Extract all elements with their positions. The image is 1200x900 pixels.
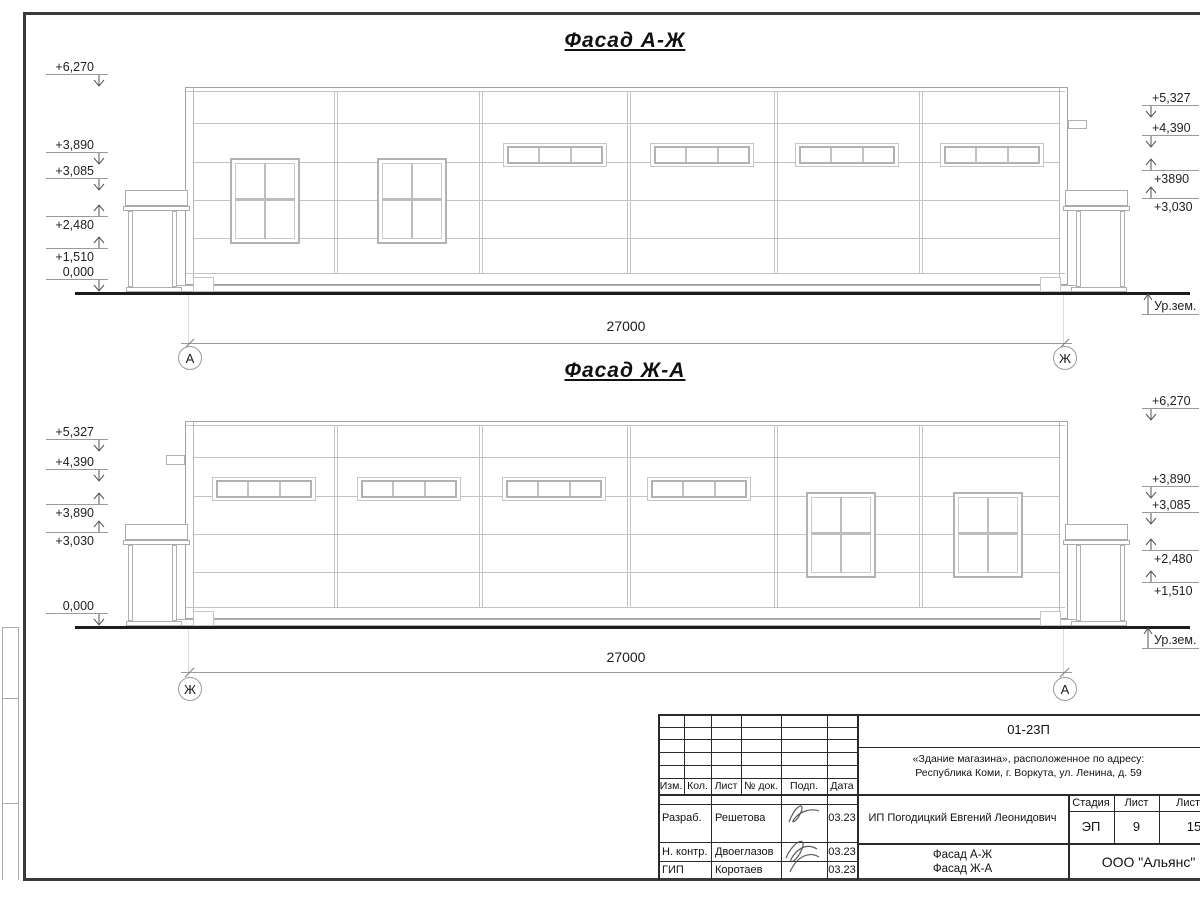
- porch-column: [1076, 545, 1081, 621]
- col-list: Лист: [711, 780, 741, 792]
- window-mullion: [392, 482, 394, 496]
- elevation-value: +3,890: [55, 138, 94, 152]
- elevation-mark: +5,327: [46, 425, 108, 455]
- elevation-leader: [1142, 582, 1199, 583]
- window-transom: [235, 198, 295, 201]
- margin-strip-line: [18, 627, 19, 880]
- titleblock-line: [658, 739, 857, 740]
- porch-canopy: [1065, 524, 1128, 540]
- panel-joint-v: [334, 91, 338, 273]
- margin-strip-divider: [2, 627, 19, 628]
- elevation-mark: 0,000: [46, 265, 108, 295]
- window-mullion: [424, 482, 426, 496]
- stage-value: ЭП: [1068, 819, 1114, 834]
- col-izm: Изм.: [658, 780, 684, 792]
- facade-title: Фасад Ж-А: [480, 359, 770, 383]
- window-ribbon-frame: [799, 146, 895, 164]
- project-line1: «Здание магазина», расположенное по адре…: [857, 753, 1200, 765]
- titleblock-line: [658, 727, 857, 728]
- porch-column: [1120, 211, 1125, 287]
- window-mullion: [570, 148, 572, 162]
- window-mullion: [569, 482, 571, 496]
- window-transom: [811, 532, 871, 535]
- elevation-mark: +3,890: [46, 490, 108, 520]
- frame-left: [23, 12, 26, 881]
- elevation-leader: [1142, 198, 1199, 199]
- role-nkontr: Н. контр.: [662, 846, 707, 858]
- window-mullion: [264, 163, 266, 239]
- sheet-label: Лист: [1114, 797, 1159, 809]
- elevation-mark: +1,510: [46, 234, 108, 264]
- elevation-mark: +4,390: [1142, 121, 1199, 151]
- name-nkontr: Двоеглазов: [715, 846, 773, 858]
- parapet-line: [186, 91, 1065, 92]
- window-ribbon-frame: [944, 146, 1040, 164]
- col-ndok: № док.: [741, 780, 781, 792]
- elevation-mark: 0,000: [46, 599, 108, 629]
- signature-strokes: [781, 794, 827, 880]
- elevation-mark: +6,270: [46, 60, 108, 90]
- panel-joint-v: [334, 425, 338, 607]
- pilaster-line: [193, 87, 194, 285]
- step: [193, 277, 214, 292]
- elevation-arrow-icon: [1145, 513, 1157, 525]
- window-mullion: [247, 482, 249, 496]
- drawing-sheet: Фасад А-Ж Фасад Ж-А 27000 27000 01-23П «…: [0, 0, 1200, 900]
- elevation-value: +3,890: [1152, 472, 1191, 486]
- porch-column: [172, 211, 177, 287]
- elevation-mark: +2,480: [1142, 536, 1199, 566]
- col-kol: Кол.: [684, 780, 711, 792]
- elevation-mark: Ур.зем.: [1142, 293, 1199, 323]
- window-ribbon-frame: [506, 480, 602, 498]
- titleblock-border: [658, 714, 1200, 716]
- col-podp: Подп.: [781, 780, 827, 792]
- window-mullion: [1007, 148, 1009, 162]
- elevation-arrow-icon: [93, 520, 105, 532]
- titleblock-line: [658, 861, 857, 862]
- window-mullion: [840, 497, 842, 573]
- name-gip: Коротаев: [715, 864, 763, 876]
- elevation-arrow-icon: [1145, 106, 1157, 118]
- elevation-value: Ур.зем.: [1154, 299, 1196, 313]
- project-line2: Республика Коми, г. Воркута, ул. Ленина,…: [857, 767, 1200, 779]
- elevation-value: +2,480: [1154, 552, 1193, 566]
- elevation-arrow-icon: [93, 492, 105, 504]
- elevation-value: +4,390: [55, 455, 94, 469]
- base-strip: [176, 285, 1077, 292]
- sheets-value: 15: [1159, 819, 1200, 834]
- elevation-arrow-icon: [93, 440, 105, 452]
- panel-joint-v: [774, 91, 778, 273]
- axis-bubble: Ж: [178, 677, 202, 701]
- date-gip: 03.23: [827, 864, 857, 876]
- elevation-leader: [46, 504, 108, 505]
- step: [193, 611, 214, 626]
- window-mullion: [538, 148, 540, 162]
- porch-canopy: [1065, 190, 1128, 206]
- elevation-value: +5,327: [1152, 91, 1191, 105]
- porch-canopy-band: [123, 540, 190, 545]
- panel-joint-v: [627, 91, 631, 273]
- window-mullion: [714, 482, 716, 496]
- axis-bubble: А: [178, 346, 202, 370]
- elevation-arrow-icon: [1145, 136, 1157, 148]
- ledge: [1068, 120, 1087, 129]
- elevation-value: +6,270: [1152, 394, 1191, 408]
- elevation-mark: +3,085: [1142, 498, 1199, 528]
- titleblock-line: [658, 778, 857, 779]
- date-nkontr: 03.23: [827, 846, 857, 858]
- elevation-value: +2,480: [55, 218, 94, 232]
- elevation-leader: [46, 532, 108, 533]
- elevation-value: +4,390: [1152, 121, 1191, 135]
- dimension-line: [181, 343, 1072, 344]
- elevation-arrow-icon: [1145, 186, 1157, 198]
- titleblock-line: [658, 765, 857, 766]
- porch-canopy: [125, 190, 188, 206]
- dimension-label: 27000: [566, 649, 686, 665]
- elevation-value: Ур.зем.: [1154, 633, 1196, 647]
- elevation-value: +3,030: [1154, 200, 1193, 214]
- drawing-title-line1: Фасад А-Ж: [857, 849, 1068, 861]
- elevation-mark: +2,480: [46, 202, 108, 232]
- plinth-line: [186, 607, 1065, 608]
- panel-joint-v: [919, 91, 923, 273]
- window-ribbon-frame: [654, 146, 750, 164]
- elevation-mark: +5,327: [1142, 91, 1199, 121]
- drawing-title-line2: Фасад Ж-А: [857, 863, 1068, 875]
- pilaster-line: [1059, 87, 1060, 285]
- window-transom: [382, 198, 442, 201]
- date-razrab: 03.23: [827, 812, 857, 824]
- elevation-arrow-icon: [1145, 538, 1157, 550]
- elevation-value: +5,327: [55, 425, 94, 439]
- stage-label: Стадия: [1068, 797, 1114, 809]
- ground-line: [75, 292, 1190, 295]
- step: [1040, 611, 1061, 626]
- porch-column: [1120, 545, 1125, 621]
- elevation-mark: +1,510: [1142, 568, 1199, 598]
- titleblock-line: [658, 752, 857, 753]
- window-mullion: [987, 497, 989, 573]
- panel-joint-v: [479, 91, 483, 273]
- panel-joint-v: [774, 425, 778, 607]
- parapet-line: [186, 425, 1065, 426]
- window-mullion: [411, 163, 413, 239]
- window-mullion: [685, 148, 687, 162]
- elevation-leader: [46, 216, 108, 217]
- ledge: [166, 455, 185, 465]
- elevation-arrow-icon: [93, 614, 105, 626]
- titleblock-line: [658, 842, 857, 843]
- porch-canopy-band: [123, 206, 190, 211]
- axis-bubble: А: [1053, 677, 1077, 701]
- elevation-mark: +6,270: [1142, 394, 1199, 424]
- window-mullion: [717, 148, 719, 162]
- window-mullion: [862, 148, 864, 162]
- axis-bubble: Ж: [1053, 346, 1077, 370]
- margin-strip-line: [2, 627, 3, 880]
- porch-column: [128, 545, 133, 621]
- plinth-line: [186, 273, 1065, 274]
- role-gip: ГИП: [662, 864, 684, 876]
- elevation-arrow-icon: [93, 204, 105, 216]
- elevation-arrow-icon: [1145, 409, 1157, 421]
- elevation-mark: +3890: [1142, 156, 1199, 186]
- window-mullion: [537, 482, 539, 496]
- elevation-mark: Ур.зем.: [1142, 627, 1199, 657]
- sheet-value: 9: [1114, 819, 1159, 834]
- elevation-leader: [1142, 550, 1199, 551]
- porch-column: [172, 545, 177, 621]
- elevation-value: 0,000: [63, 265, 94, 279]
- elevation-mark: +3,030: [1142, 184, 1199, 214]
- titleblock-line: [1068, 811, 1200, 812]
- porch-column: [128, 211, 133, 287]
- titleblock-line: [658, 804, 857, 805]
- window-mullion: [830, 148, 832, 162]
- elevation-leader: [1142, 170, 1199, 171]
- sheets-label: Листов: [1159, 797, 1200, 809]
- pilaster-line: [1059, 421, 1060, 619]
- elevation-leader: [46, 248, 108, 249]
- elevation-arrow-icon: [1145, 570, 1157, 582]
- elevation-arrow-icon: [93, 75, 105, 87]
- panel-joint-v: [627, 425, 631, 607]
- elevation-value: +1,510: [55, 250, 94, 264]
- frame-bottom: [23, 878, 1200, 881]
- elevation-leader: [1142, 314, 1199, 315]
- window-mullion: [279, 482, 281, 496]
- elevation-value: +1,510: [1154, 584, 1193, 598]
- step: [1040, 277, 1061, 292]
- elevation-arrow-icon: [93, 236, 105, 248]
- elevation-mark: +4,390: [46, 455, 108, 485]
- margin-strip-divider: [2, 698, 19, 699]
- name-razrab: Решетова: [715, 812, 765, 824]
- elevation-value: +3,030: [55, 534, 94, 548]
- window-mullion: [975, 148, 977, 162]
- titleblock-line: [857, 747, 1200, 748]
- elevation-arrow-icon: [93, 470, 105, 482]
- elevation-value: +6,270: [55, 60, 94, 74]
- elevation-value: 0,000: [63, 599, 94, 613]
- panel-joint-v: [919, 425, 923, 607]
- window-mullion: [682, 482, 684, 496]
- titleblock-line: [658, 794, 1200, 796]
- company: ООО "Альянс": [1068, 854, 1200, 870]
- elevation-arrow-icon: [93, 179, 105, 191]
- elevation-arrow-icon: [1142, 627, 1154, 648]
- pilaster-line: [193, 421, 194, 619]
- elevation-arrow-icon: [1142, 293, 1154, 314]
- facade-title: Фасад А-Ж: [480, 29, 770, 53]
- col-data: Дата: [827, 780, 857, 792]
- window-ribbon-frame: [216, 480, 312, 498]
- dimension-line: [181, 672, 1072, 673]
- dimension-label: 27000: [566, 318, 686, 334]
- frame-top: [23, 12, 1200, 15]
- window-ribbon-frame: [651, 480, 747, 498]
- client: ИП Погодицкий Евгений Леонидович: [857, 812, 1068, 824]
- window-ribbon-frame: [507, 146, 603, 164]
- window-ribbon-frame: [361, 480, 457, 498]
- panel-joint-v: [479, 425, 483, 607]
- porch-canopy: [125, 524, 188, 540]
- elevation-mark: +3,030: [46, 518, 108, 548]
- elevation-value: +3,085: [1152, 498, 1191, 512]
- doc-number: 01-23П: [857, 722, 1200, 737]
- elevation-leader: [1142, 648, 1199, 649]
- elevation-value: +3,085: [55, 164, 94, 178]
- elevation-arrow-icon: [93, 280, 105, 292]
- role-razrab: Разраб.: [662, 812, 702, 824]
- window-transom: [958, 532, 1018, 535]
- margin-strip-divider: [2, 803, 19, 804]
- porch-column: [1076, 211, 1081, 287]
- ground-line: [75, 626, 1190, 629]
- base-strip: [176, 619, 1077, 626]
- titleblock-line: [857, 843, 1200, 845]
- elevation-arrow-icon: [1145, 158, 1157, 170]
- elevation-mark: +3,085: [46, 164, 108, 194]
